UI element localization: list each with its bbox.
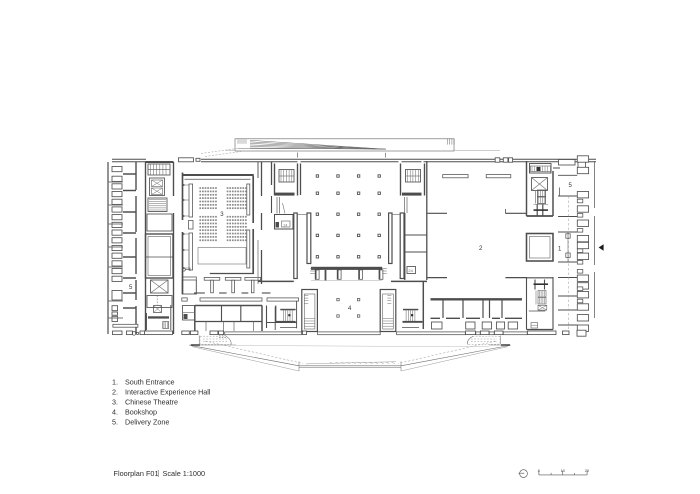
svg-text:Scale 1:1000: Scale 1:1000 [163, 469, 206, 478]
svg-text:South Entrance: South Entrance [125, 378, 175, 387]
svg-text:1.: 1. [112, 378, 118, 387]
svg-text:5.: 5. [112, 418, 118, 427]
svg-text:Interactive Experience Hall: Interactive Experience Hall [125, 388, 211, 397]
svg-text:24: 24 [283, 223, 287, 227]
svg-text:24: 24 [408, 268, 413, 273]
svg-text:Chinese Theatre: Chinese Theatre [125, 398, 178, 407]
svg-text:3.: 3. [112, 398, 118, 407]
svg-text:20: 20 [585, 469, 589, 473]
svg-text:2.: 2. [112, 388, 118, 397]
svg-text:0: 0 [538, 469, 540, 473]
svg-text:Bookshop: Bookshop [125, 408, 157, 417]
svg-text:4.: 4. [112, 408, 118, 417]
svg-text:Floorplan F01: Floorplan F01 [114, 469, 159, 478]
svg-text:|: | [157, 469, 159, 478]
svg-text:Delivery Zone: Delivery Zone [125, 418, 169, 427]
svg-text:10: 10 [561, 469, 565, 473]
